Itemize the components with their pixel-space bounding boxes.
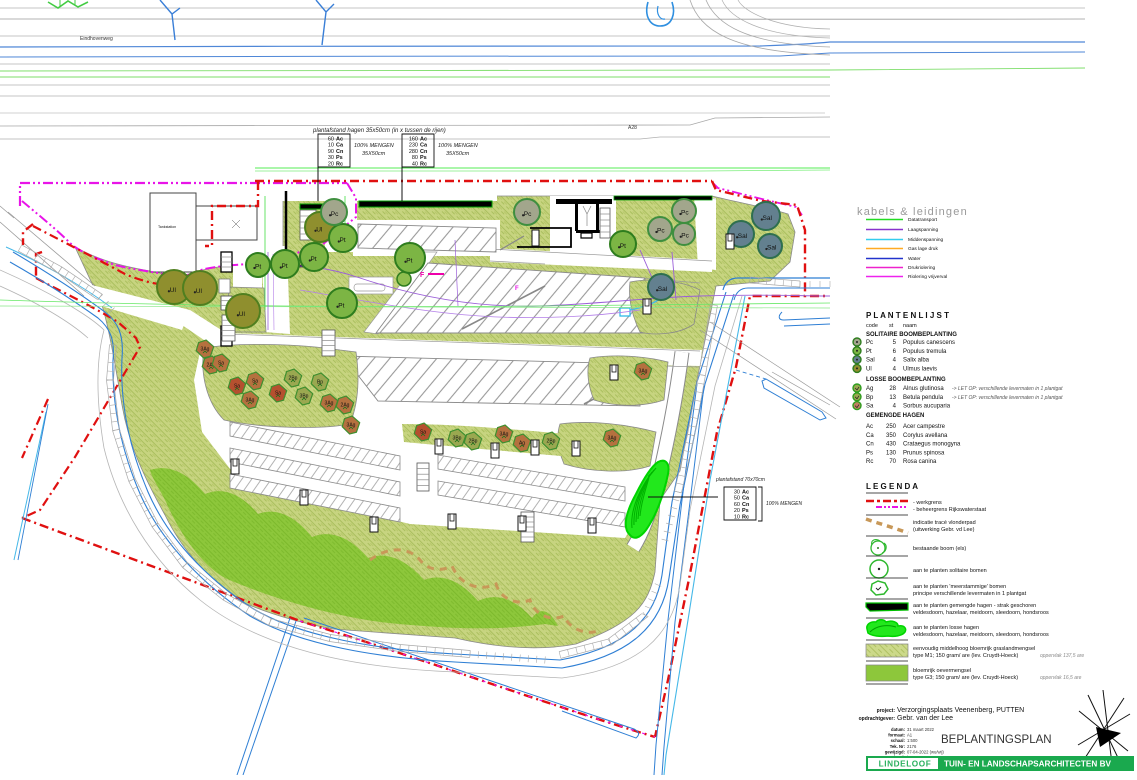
svg-text:Sal: Sal: [738, 233, 748, 240]
svg-text:(uitwerking Gebr. vd Lee): (uitwerking Gebr. vd Lee): [913, 527, 975, 533]
svg-text:Ul: Ul: [170, 287, 177, 294]
svg-text:Sal: Sal: [767, 245, 777, 252]
svg-text:Pt: Pt: [338, 303, 344, 310]
svg-text:type M1; 150 gram/ are (lev. C: type M1; 150 gram/ are (lev. Cruydt-Hoec…: [913, 653, 1019, 659]
svg-text:Ulmus laevis: Ulmus laevis: [903, 366, 937, 372]
svg-text:Sorbus aucuparia: Sorbus aucuparia: [903, 404, 951, 410]
svg-text:Sal: Sal: [866, 358, 875, 364]
svg-text:Pc: Pc: [657, 228, 665, 235]
svg-text:Ca: Ca: [742, 496, 750, 502]
svg-text:kabels & leidingen: kabels & leidingen: [857, 206, 968, 218]
svg-text:Ps: Ps: [336, 155, 343, 161]
svg-text:Water: Water: [908, 256, 921, 262]
svg-text:350: 350: [886, 433, 897, 439]
svg-text:280: 280: [409, 149, 418, 155]
svg-text:20: 20: [328, 161, 334, 167]
svg-text:Ac: Ac: [742, 490, 749, 496]
svg-text:Cn: Cn: [742, 502, 750, 508]
svg-text:160: 160: [409, 137, 418, 143]
svg-text:Ca: Ca: [420, 143, 428, 149]
svg-text:10: 10: [328, 143, 334, 149]
svg-text:31 maart 2022: 31 maart 2022: [907, 727, 935, 732]
svg-text:Pt: Pt: [406, 258, 412, 265]
svg-text:bestaande boom (els): bestaande boom (els): [913, 546, 966, 552]
svg-text:30: 30: [734, 490, 740, 496]
svg-text:28: 28: [889, 386, 896, 392]
svg-text:Riolering vrijverval: Riolering vrijverval: [908, 274, 947, 280]
svg-text:Cn: Cn: [420, 149, 428, 155]
svg-text:90: 90: [328, 149, 334, 155]
svg-text:Datatransport: Datatransport: [908, 217, 938, 223]
svg-text:Rc: Rc: [742, 514, 749, 520]
svg-text:BEPLANTINGSPLAN: BEPLANTINGSPLAN: [941, 734, 1052, 746]
svg-text:-> LET OP: verschillende lever: -> LET OP: verschillende levermaten in 1…: [952, 395, 1063, 401]
svg-text:100% MENGEN: 100% MENGEN: [766, 501, 803, 507]
svg-text:st: st: [889, 323, 894, 329]
svg-text:Ps: Ps: [420, 155, 427, 161]
svg-text:Crataegus monogyna: Crataegus monogyna: [903, 442, 961, 448]
svg-text:Middenspanning: Middenspanning: [908, 237, 944, 243]
svg-text:Pt: Pt: [866, 349, 872, 355]
svg-text:07-04-2022 (wu/wij): 07-04-2022 (wu/wij): [907, 749, 944, 754]
svg-text:Sal: Sal: [658, 286, 668, 293]
svg-text:35X50cm: 35X50cm: [446, 151, 470, 157]
svg-text:Populus canescens: Populus canescens: [903, 340, 955, 346]
svg-text:Gas lage druk: Gas lage druk: [908, 246, 938, 252]
svg-text:250: 250: [886, 424, 897, 430]
svg-text:Betula pendula: Betula pendula: [903, 395, 944, 401]
svg-text:Ps: Ps: [742, 508, 749, 514]
svg-text:Ul: Ul: [866, 366, 872, 372]
svg-text:130: 130: [886, 450, 897, 456]
svg-text:Tankstation: Tankstation: [158, 225, 176, 229]
svg-text:40: 40: [412, 161, 418, 167]
svg-text:SOLITAIRE BOOMBEPLANTING: SOLITAIRE BOOMBEPLANTING: [866, 332, 957, 338]
svg-text:Tek. Nr:: Tek. Nr:: [890, 744, 905, 749]
svg-text:Pt: Pt: [340, 237, 346, 244]
svg-text:A1: A1: [907, 733, 913, 738]
svg-text:Pt: Pt: [255, 264, 261, 271]
svg-text:Corylus avellana: Corylus avellana: [903, 433, 948, 439]
svg-text:100% MENGEN: 100% MENGEN: [438, 143, 478, 149]
svg-text:Ca: Ca: [336, 143, 344, 149]
svg-text:Cn: Cn: [866, 442, 874, 448]
svg-text:F: F: [420, 272, 425, 279]
svg-text:indicatie tracé vlonderpad: indicatie tracé vlonderpad: [913, 520, 976, 526]
svg-text:gewijzigd:: gewijzigd:: [885, 749, 905, 754]
svg-text:TUIN- EN LANDSCHAPSARCHITECTEN: TUIN- EN LANDSCHAPSARCHITECTEN BV: [944, 760, 1111, 769]
svg-text:Ca: Ca: [866, 433, 874, 439]
svg-text:2176: 2176: [907, 744, 917, 749]
svg-text:oppervlak 16,5 are: oppervlak 16,5 are: [1040, 675, 1082, 681]
svg-text:1:500: 1:500: [907, 738, 918, 743]
svg-text:20: 20: [734, 508, 740, 514]
svg-text:aan te planten losse hagen: aan te planten losse hagen: [913, 625, 979, 631]
svg-text:Laagspanning: Laagspanning: [908, 227, 938, 233]
svg-text:Pt: Pt: [620, 243, 626, 250]
svg-text:35X50cm: 35X50cm: [362, 151, 386, 157]
svg-text:naam: naam: [903, 323, 917, 329]
svg-text:Drukriolering: Drukriolering: [908, 265, 936, 271]
svg-text:Ps: Ps: [866, 450, 873, 456]
svg-text:datum:: datum:: [891, 727, 905, 732]
svg-text:Pc: Pc: [331, 211, 339, 218]
svg-text:principe verschillende leverma: principe verschillende levermaten in 1 p…: [913, 591, 1027, 597]
svg-text:430: 430: [886, 442, 897, 448]
svg-text:Bp: Bp: [866, 395, 874, 401]
svg-text:Sal: Sal: [763, 215, 773, 222]
svg-text:Pc: Pc: [681, 210, 689, 217]
svg-text:opdrachtgever:: opdrachtgever:: [859, 716, 896, 722]
svg-text:LINDELOOF: LINDELOOF: [879, 760, 932, 769]
svg-text:- werkgrens: - werkgrens: [913, 500, 942, 506]
svg-text:10: 10: [734, 514, 740, 520]
svg-text:formaat:: formaat:: [888, 733, 905, 738]
svg-text:70: 70: [889, 459, 896, 465]
svg-text:oppervlak 137,5 are: oppervlak 137,5 are: [1040, 653, 1084, 659]
svg-text:Ac: Ac: [866, 424, 873, 430]
svg-text:Ul: Ul: [316, 227, 323, 234]
svg-text:Pc: Pc: [524, 211, 532, 218]
svg-text:code: code: [866, 323, 878, 329]
svg-text:100% MENGEN: 100% MENGEN: [354, 143, 394, 149]
svg-text:230: 230: [409, 143, 418, 149]
svg-text:GEMENGDE HAGEN: GEMENGDE HAGEN: [866, 413, 924, 419]
svg-text:Ac: Ac: [420, 137, 427, 143]
svg-text:-> LET OP: verschillende lever: -> LET OP: verschillende levermaten in 1…: [952, 386, 1063, 392]
svg-text:LOSSE BOOMBEPLANTING: LOSSE BOOMBEPLANTING: [866, 377, 946, 383]
svg-text:Ac: Ac: [336, 137, 343, 143]
svg-text:Prunus spinosa: Prunus spinosa: [903, 450, 945, 456]
svg-text:eenvoudig middelhoog bloemrijk: eenvoudig middelhoog bloemrijk graslandm…: [913, 646, 1035, 652]
svg-text:13: 13: [889, 395, 896, 401]
svg-text:80: 80: [412, 155, 418, 161]
svg-text:Pt: Pt: [282, 263, 288, 270]
svg-text:aan te planten solitaire bomen: aan te planten solitaire bomen: [913, 568, 987, 574]
svg-text:project:: project:: [877, 708, 896, 714]
svg-text:Rc: Rc: [420, 161, 427, 167]
svg-text:aan te planten 'meerstammige': aan te planten 'meerstammige' bomen: [913, 584, 1006, 590]
svg-text:veldesdoorn, hazelaar, meidoor: veldesdoorn, hazelaar, meidoorn, sleedoo…: [913, 632, 1049, 638]
svg-text:60: 60: [734, 502, 740, 508]
svg-text:Gebr. van der Lee: Gebr. van der Lee: [897, 715, 953, 722]
svg-text:plantafstand hagen 35x50cm (in: plantafstand hagen 35x50cm (in x tussen …: [312, 128, 446, 134]
svg-text:Rosa canina: Rosa canina: [903, 459, 937, 465]
svg-text:50: 50: [734, 496, 740, 502]
svg-text:L E G E N D A: L E G E N D A: [866, 482, 918, 491]
svg-text:Pt: Pt: [311, 256, 317, 263]
svg-text:veldesdoorn, hazelaar, meidoor: veldesdoorn, hazelaar, meidoorn, sleedoo…: [913, 610, 1049, 616]
svg-text:F: F: [515, 286, 519, 292]
svg-text:schaal:: schaal:: [891, 738, 905, 743]
svg-text:Ul: Ul: [239, 311, 246, 318]
svg-text:Rc: Rc: [336, 161, 343, 167]
svg-text:Pc: Pc: [681, 232, 689, 239]
svg-text:plantafstand 70x70cm: plantafstand 70x70cm: [715, 477, 765, 483]
svg-text:60: 60: [328, 137, 334, 143]
svg-text:Populus tremula: Populus tremula: [903, 349, 947, 355]
svg-text:Alnus glutinosa: Alnus glutinosa: [903, 386, 944, 392]
svg-text:type G3; 150 gram/ are (lev. C: type G3; 150 gram/ are (lev. Cruydt-Hoec…: [913, 675, 1018, 681]
svg-text:aan te planten gemengde hagen: aan te planten gemengde hagen - strak ge…: [913, 603, 1036, 609]
svg-text:Verzorgingsplaats Veenenberg,: Verzorgingsplaats Veenenberg, PUTTEN: [897, 707, 1024, 714]
svg-text:Pc: Pc: [866, 340, 873, 346]
svg-text:A28: A28: [628, 125, 637, 131]
svg-text:- beheergrens Rijkswaterstaat: - beheergrens Rijkswaterstaat: [913, 507, 987, 513]
svg-text:Acer campestre: Acer campestre: [903, 424, 946, 430]
svg-text:Salix alba: Salix alba: [903, 358, 930, 364]
svg-text:Eindhovenweg: Eindhovenweg: [80, 36, 113, 42]
svg-text:Ul: Ul: [196, 288, 203, 295]
svg-text:Cn: Cn: [336, 149, 344, 155]
svg-text:Sa: Sa: [866, 404, 874, 410]
svg-text:P L A N T E N L I J S T: P L A N T E N L I J S T: [866, 311, 949, 320]
svg-text:Rc: Rc: [866, 459, 873, 465]
svg-text:Ag: Ag: [866, 386, 873, 392]
svg-text:30: 30: [328, 155, 334, 161]
svg-text:bloemrijk oevermengsel: bloemrijk oevermengsel: [913, 668, 971, 674]
